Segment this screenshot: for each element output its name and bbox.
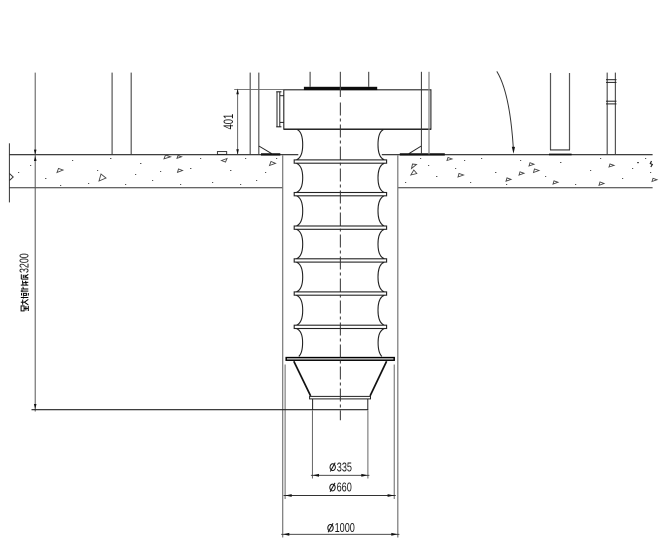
svg-text:3200: 3200: [18, 253, 32, 273]
svg-text:335: 335: [337, 461, 352, 475]
svg-text:401: 401: [222, 114, 237, 130]
svg-text:1000: 1000: [335, 522, 355, 536]
svg-text:660: 660: [337, 481, 352, 495]
